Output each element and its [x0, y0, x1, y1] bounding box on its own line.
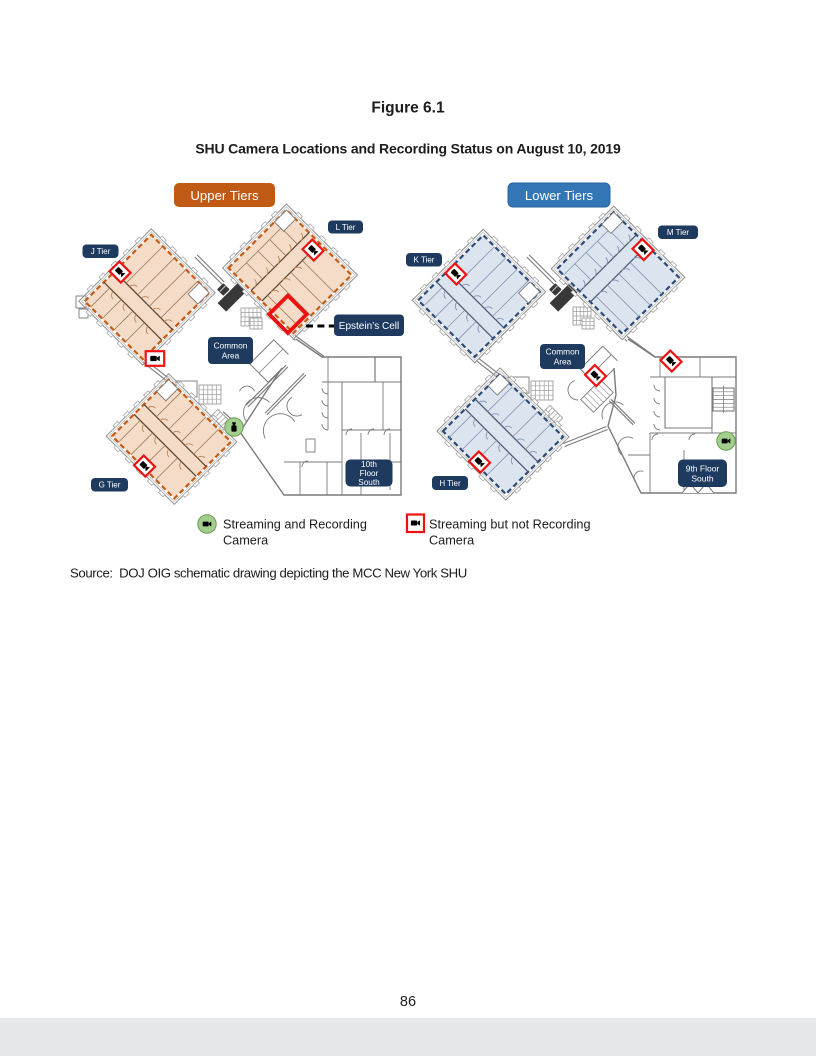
- svg-text:L Tier: L Tier: [336, 223, 356, 232]
- svg-text:SHU Camera Locations and Recor: SHU Camera Locations and Recording Statu…: [195, 141, 621, 157]
- svg-text:Area: Area: [222, 350, 240, 360]
- svg-text:10th: 10th: [361, 460, 377, 469]
- svg-text:M Tier: M Tier: [667, 228, 690, 237]
- svg-text:G Tier: G Tier: [99, 481, 121, 490]
- svg-text:Figure 6.1: Figure 6.1: [371, 100, 445, 117]
- svg-text:Area: Area: [554, 356, 572, 366]
- svg-text:Upper Tiers: Upper Tiers: [190, 188, 259, 203]
- svg-text:Lower Tiers: Lower Tiers: [525, 188, 594, 203]
- svg-text:Source: DOJ OIG schematic dra: Source: DOJ OIG schematic drawing depict…: [70, 566, 467, 581]
- svg-text:Common: Common: [546, 347, 580, 357]
- svg-text:K Tier: K Tier: [414, 256, 435, 265]
- svg-text:H Tier: H Tier: [439, 479, 461, 488]
- svg-text:Floor: Floor: [360, 469, 379, 478]
- svg-text:9th Floor: 9th Floor: [686, 463, 720, 473]
- svg-text:Common: Common: [214, 341, 248, 351]
- svg-text:South: South: [691, 473, 713, 483]
- svg-text:Camera: Camera: [223, 534, 269, 548]
- svg-text:Streaming but not Recording: Streaming but not Recording: [429, 518, 591, 532]
- svg-text:Epstein’s Cell: Epstein’s Cell: [339, 321, 399, 332]
- svg-text:South: South: [358, 478, 380, 487]
- svg-text:Camera: Camera: [429, 534, 475, 548]
- svg-text:Streaming and Recording: Streaming and Recording: [223, 518, 367, 532]
- svg-text:86: 86: [400, 994, 416, 1010]
- svg-text:J Tier: J Tier: [91, 247, 111, 256]
